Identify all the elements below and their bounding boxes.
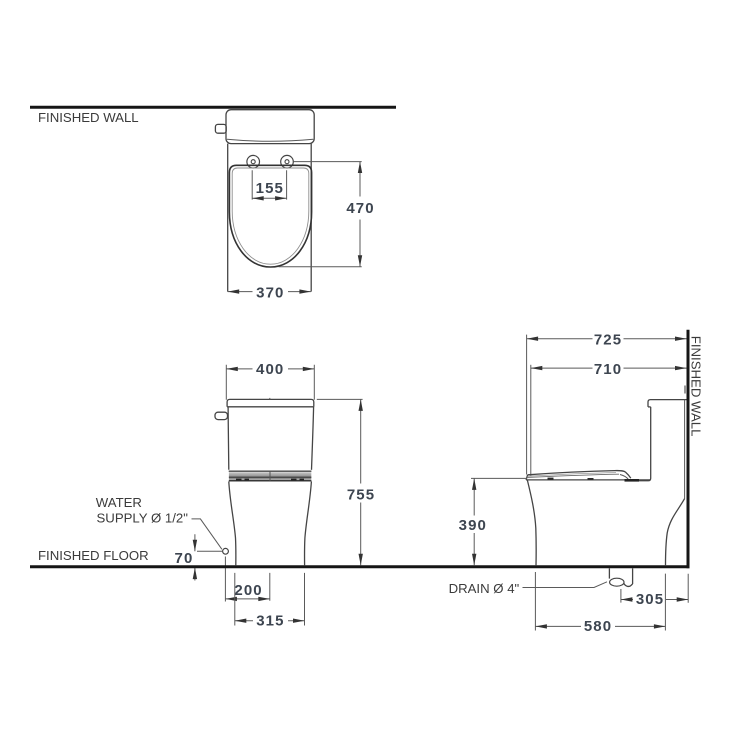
svg-text:305: 305 [636, 591, 664, 608]
svg-text:DRAIN Ø 4": DRAIN Ø 4" [449, 581, 520, 596]
svg-text:FINISHED FLOOR: FINISHED FLOOR [38, 548, 149, 563]
svg-text:470: 470 [346, 200, 374, 217]
svg-text:725: 725 [594, 331, 622, 348]
svg-text:755: 755 [347, 487, 375, 504]
svg-text:FINISHED WALL: FINISHED WALL [689, 336, 704, 437]
svg-text:SUPPLY Ø 1/2": SUPPLY Ø 1/2" [97, 511, 189, 526]
svg-text:370: 370 [256, 284, 284, 301]
svg-text:FINISHED WALL: FINISHED WALL [38, 110, 139, 125]
svg-text:WATER: WATER [96, 495, 142, 510]
svg-text:155: 155 [256, 180, 284, 197]
svg-text:710: 710 [594, 361, 622, 378]
svg-text:390: 390 [459, 517, 487, 534]
svg-text:315: 315 [256, 612, 284, 629]
svg-text:200: 200 [234, 582, 262, 599]
svg-text:70: 70 [175, 550, 194, 567]
svg-text:580: 580 [584, 618, 612, 635]
svg-text:400: 400 [256, 361, 284, 378]
